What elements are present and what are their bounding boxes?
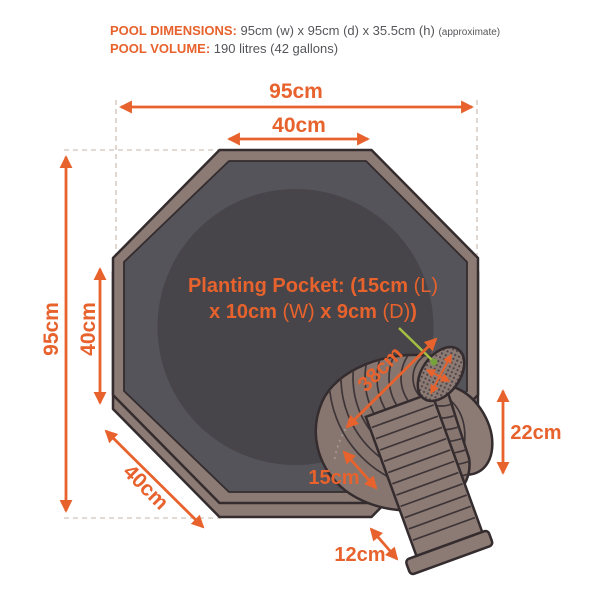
label-pool-height-left: 95cm <box>40 302 63 356</box>
diagram-canvas: 95cm 40cm 95cm 40cm 40cm 38cm 15cm 22cm … <box>0 0 600 600</box>
label-pool-width-top: 95cm <box>269 80 323 103</box>
label-top-edge: 40cm <box>272 114 326 137</box>
label-spillway-lip: 12cm <box>334 544 385 566</box>
pocket-caption-line2: x 10cm (W) x 9cm (D)) <box>209 301 417 323</box>
label-cascade-height: 22cm <box>510 422 561 444</box>
pocket-caption-line1: Planting Pocket: (15cm (L) <box>188 275 438 297</box>
label-left-edge: 40cm <box>77 302 100 356</box>
pocket-pointer-dot <box>431 359 438 366</box>
pool-dimension-diagram: POOL DIMENSIONS: 95cm (w) x 95cm (d) x 3… <box>0 0 600 600</box>
label-cascade-inner: 15cm <box>308 467 359 489</box>
